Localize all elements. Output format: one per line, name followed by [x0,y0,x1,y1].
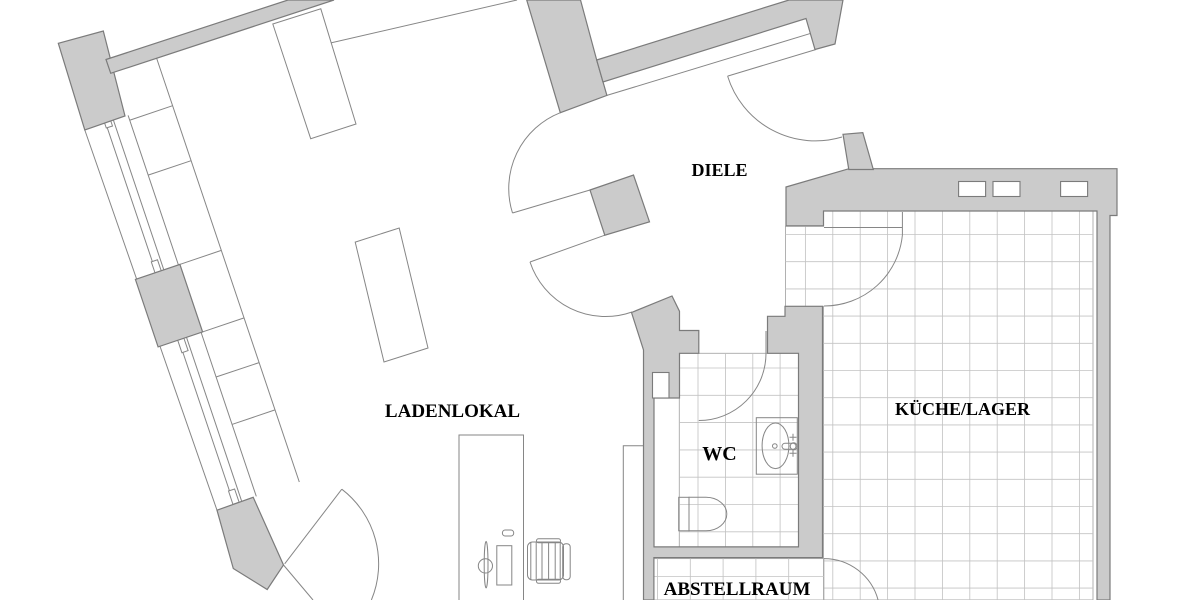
svg-text:KÜCHE/LAGER: KÜCHE/LAGER [895,399,1031,419]
svg-text:ABSTELLRAUM: ABSTELLRAUM [664,579,811,600]
svg-text:WC: WC [702,443,736,465]
svg-text:DIELE: DIELE [691,160,747,180]
svg-text:LADENLOKAL: LADENLOKAL [385,401,520,422]
